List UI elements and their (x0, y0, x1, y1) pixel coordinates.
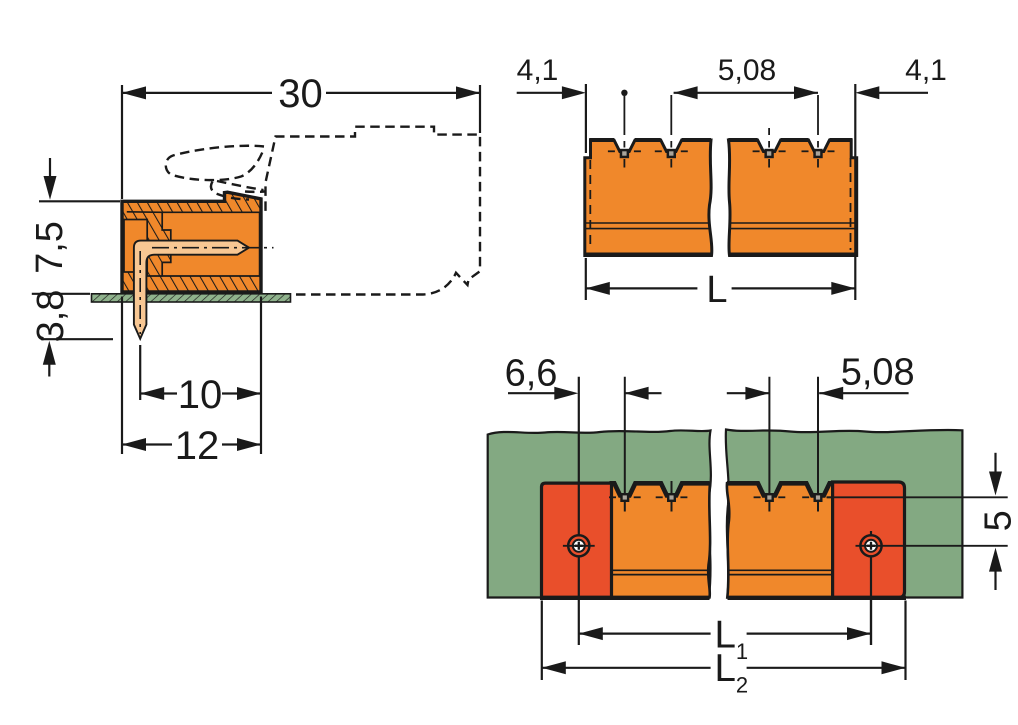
svg-text:3,8: 3,8 (30, 290, 72, 343)
svg-text:4,1: 4,1 (905, 54, 947, 87)
svg-text:5,08: 5,08 (841, 352, 915, 394)
svg-text:L: L (706, 269, 727, 311)
svg-text:10: 10 (178, 373, 223, 417)
svg-text:5,08: 5,08 (718, 54, 776, 87)
svg-text:7,5: 7,5 (29, 221, 71, 274)
svg-text:4,1: 4,1 (517, 54, 559, 87)
svg-text:6,6: 6,6 (505, 353, 558, 395)
svg-text:5: 5 (978, 510, 1018, 531)
svg-text:12: 12 (175, 424, 220, 468)
svg-text:30: 30 (278, 72, 323, 116)
